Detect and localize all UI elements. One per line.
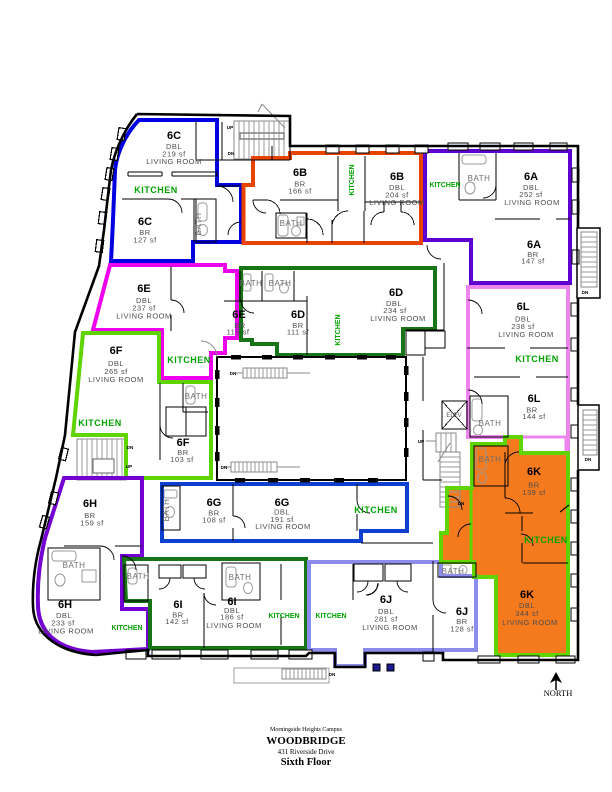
svg-text:KITCHEN: KITCHEN	[429, 182, 460, 189]
svg-text:108 sf: 108 sf	[202, 516, 226, 525]
svg-text:BATH: BATH	[468, 174, 491, 183]
svg-text:6J: 6J	[380, 594, 392, 606]
svg-text:KITCHEN: KITCHEN	[167, 355, 211, 365]
svg-text:111 sf: 111 sf	[287, 328, 310, 337]
svg-text:6A: 6A	[524, 171, 538, 183]
svg-text:DN: DN	[582, 290, 589, 295]
svg-text:159 sf: 159 sf	[80, 519, 104, 528]
svg-text:NORTH: NORTH	[544, 688, 573, 698]
svg-text:6D: 6D	[389, 287, 403, 299]
svg-text:166 sf: 166 sf	[288, 187, 312, 196]
svg-text:344 sf: 344 sf	[515, 609, 539, 618]
svg-text:BATH: BATH	[479, 455, 502, 464]
svg-text:115 sf: 115 sf	[227, 328, 250, 337]
svg-text:6E: 6E	[232, 309, 245, 321]
svg-text:WOODBRIDGE: WOODBRIDGE	[266, 735, 345, 747]
svg-text:6E: 6E	[137, 283, 150, 295]
svg-text:6I: 6I	[173, 599, 182, 611]
svg-text:103 sf: 103 sf	[170, 455, 194, 464]
svg-text:DN: DN	[221, 465, 228, 470]
svg-text:LIVING ROOM: LIVING ROOM	[255, 522, 311, 531]
svg-text:142 sf: 142 sf	[165, 617, 189, 626]
svg-text:LIVING ROOM: LIVING ROOM	[498, 330, 554, 339]
svg-text:144 sf: 144 sf	[522, 412, 546, 421]
svg-text:KITCHEN: KITCHEN	[354, 505, 398, 515]
svg-text:LIVING ROOM: LIVING ROOM	[362, 623, 418, 632]
svg-text:6K: 6K	[527, 466, 541, 478]
svg-text:LIVING ROOM: LIVING ROOM	[370, 314, 426, 323]
svg-text:139 sf: 139 sf	[522, 488, 546, 497]
svg-text:DN: DN	[458, 501, 465, 506]
svg-text:6C: 6C	[138, 216, 152, 228]
svg-text:BATH: BATH	[269, 279, 292, 288]
svg-text:KITCHEN: KITCHEN	[315, 613, 346, 620]
svg-text:UP: UP	[126, 464, 132, 469]
svg-text:LIVING ROOM: LIVING ROOM	[504, 198, 560, 207]
svg-text:6H: 6H	[83, 498, 97, 510]
svg-text:LIVING ROOM: LIVING ROOM	[146, 157, 202, 166]
svg-text:Morningside Heights Campus: Morningside Heights Campus	[270, 727, 343, 733]
svg-text:BATH: BATH	[194, 213, 203, 236]
svg-text:LIVING ROOM: LIVING ROOM	[206, 621, 262, 630]
svg-text:UP: UP	[227, 125, 233, 130]
svg-text:LIVING ROOM: LIVING ROOM	[369, 198, 425, 207]
svg-text:KITCHEN: KITCHEN	[268, 613, 299, 620]
svg-text:KITCHEN: KITCHEN	[524, 535, 568, 545]
svg-text:6D: 6D	[291, 309, 305, 321]
svg-text:BATH: BATH	[63, 561, 86, 570]
svg-text:BATH: BATH	[240, 279, 263, 288]
svg-text:KITCHEN: KITCHEN	[134, 185, 178, 195]
svg-text:BATH: BATH	[162, 499, 171, 522]
svg-text:BATH: BATH	[185, 392, 208, 401]
svg-text:LIVING ROOM: LIVING ROOM	[116, 312, 172, 321]
svg-text:DN: DN	[329, 672, 336, 677]
svg-text:BATH: BATH	[479, 419, 502, 428]
svg-text:DN: DN	[585, 457, 592, 462]
svg-text:KITCHEN: KITCHEN	[78, 418, 122, 428]
svg-text:ELEV: ELEV	[446, 413, 461, 419]
svg-text:6K: 6K	[520, 589, 534, 601]
svg-text:431 Riverside Drive: 431 Riverside Drive	[278, 748, 335, 756]
svg-text:Sixth Floor: Sixth Floor	[281, 757, 332, 768]
svg-text:KITCHEN: KITCHEN	[335, 314, 342, 345]
svg-text:6B: 6B	[390, 171, 404, 183]
svg-text:DN: DN	[228, 151, 235, 156]
svg-text:6C: 6C	[167, 130, 181, 142]
svg-text:BATH: BATH	[127, 572, 150, 581]
svg-text:6L: 6L	[517, 301, 530, 313]
svg-text:KITCHEN: KITCHEN	[349, 164, 356, 195]
svg-text:127 sf: 127 sf	[133, 236, 157, 245]
svg-text:6H: 6H	[58, 599, 72, 611]
svg-text:DN: DN	[230, 371, 237, 376]
svg-text:6F: 6F	[110, 345, 123, 357]
svg-text:LIVING ROOM: LIVING ROOM	[88, 375, 144, 384]
svg-text:128 sf: 128 sf	[450, 625, 474, 634]
svg-text:LIVING ROOM: LIVING ROOM	[38, 627, 94, 636]
svg-text:DN: DN	[127, 445, 134, 450]
svg-text:6B: 6B	[293, 167, 307, 179]
svg-text:KITCHEN: KITCHEN	[515, 354, 559, 364]
svg-text:KITCHEN: KITCHEN	[111, 625, 142, 632]
svg-text:6G: 6G	[207, 497, 222, 509]
svg-text:LIVING ROOM: LIVING ROOM	[502, 618, 558, 627]
svg-text:UP: UP	[418, 439, 424, 444]
svg-text:BATH: BATH	[442, 567, 465, 576]
svg-text:BATH: BATH	[280, 219, 303, 228]
svg-text:147 sf: 147 sf	[521, 257, 545, 266]
svg-text:6L: 6L	[528, 393, 541, 405]
svg-text:BATH: BATH	[229, 573, 252, 582]
